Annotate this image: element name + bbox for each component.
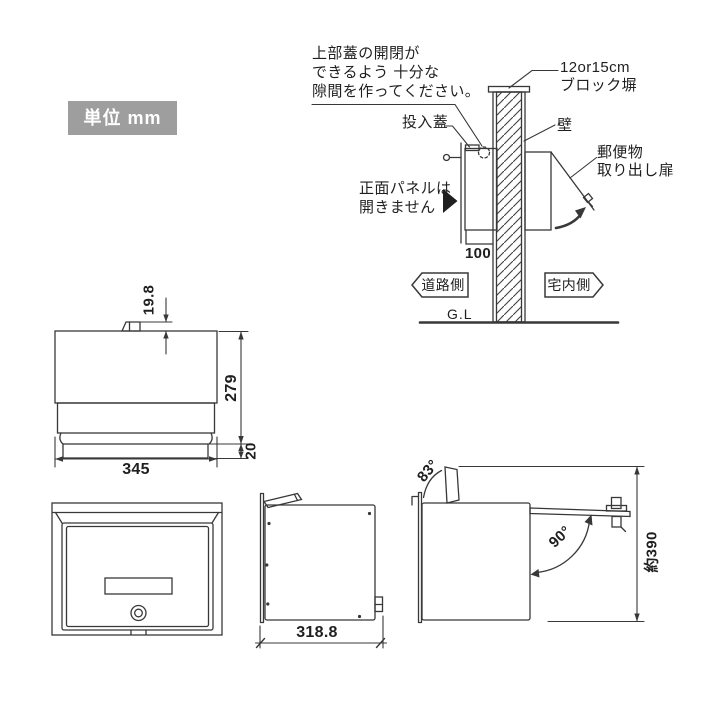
front-panel-note-line2: 開きません: [359, 198, 451, 217]
retrieval-door-label-line2: 取り出し扉: [597, 162, 674, 180]
width-dim: 345: [111, 461, 161, 479]
unit-badge: 単位 mm: [68, 101, 177, 135]
house-side-sign-label: 宅内側: [546, 276, 592, 295]
gap-note-line3: 隙間を作ってください。: [312, 82, 480, 101]
lock-dial: [131, 606, 146, 621]
total-height-dim: 約390: [641, 531, 662, 572]
open-top-lid: [445, 467, 459, 503]
front-view-drawing: [52, 503, 222, 635]
open-door-bar: [530, 508, 630, 517]
embed-depth-dim: 100: [463, 245, 493, 262]
retrieval-door-label-line1: 郵便物: [597, 144, 674, 162]
gap-note: 上部蓋の開閉が できるよう 十分な 隙間を作ってください。: [312, 44, 480, 101]
front-panel-note: 正面パネルは 開きません: [359, 179, 451, 217]
slot-lid-label: 投入蓋: [402, 113, 448, 132]
body-height-dim: 279: [223, 374, 241, 402]
wall-label: 壁: [557, 116, 572, 135]
retrieval-door-line: [551, 152, 594, 210]
block-wall-label-line1: 12or15cm: [560, 59, 637, 77]
open-direction-arrow: [556, 207, 586, 228]
tab-height-dim: 19.8: [141, 285, 158, 315]
gap-note-line2: できるよう 十分な: [312, 63, 480, 82]
ground-level-label: G.L: [447, 305, 473, 324]
road-side-sign-label: 道路側: [420, 276, 466, 295]
gap-note-line1: 上部蓋の開閉が: [312, 44, 480, 63]
block-wall: [489, 87, 530, 323]
depth-dim: 318.8: [292, 624, 342, 642]
base-height-dim: 20: [243, 442, 260, 459]
retrieval-door-label: 郵便物 取り出し扉: [597, 144, 674, 180]
plan-view-dimension-lines: [55, 298, 248, 467]
mailbox-front-section: [444, 143, 498, 244]
front-panel-note-line1: 正面パネルは: [359, 179, 451, 198]
block-wall-label: 12or15cm ブロック塀: [560, 59, 637, 95]
mailbox-rear-section: [525, 152, 594, 230]
open-state-drawing: [412, 467, 644, 623]
door-latch: [607, 498, 627, 532]
name-plate: [105, 578, 172, 594]
plan-view-drawing: [55, 298, 248, 467]
block-wall-label-line2: ブロック塀: [560, 77, 637, 95]
screw-dots: [265, 512, 371, 618]
drawing-canvas: 単位 mm 上部蓋の開閉が できるよう 十分な 隙間を作ってください。 投入蓋 …: [0, 0, 720, 720]
